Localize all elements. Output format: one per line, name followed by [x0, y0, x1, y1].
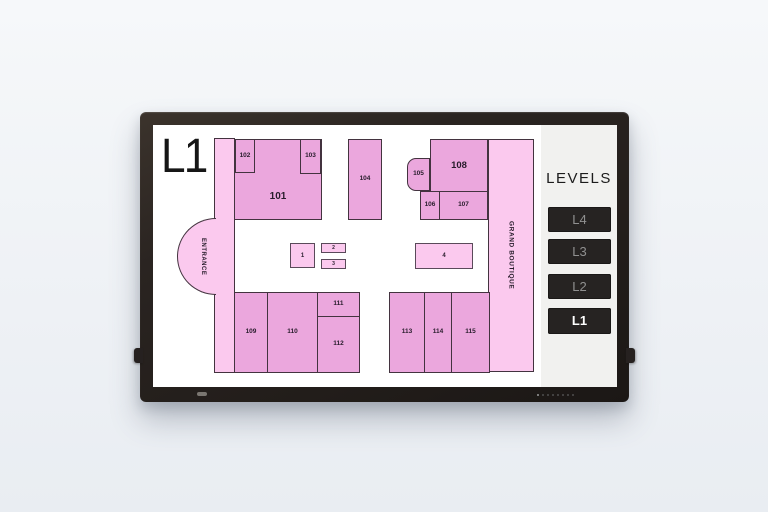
- entrance-area: [177, 218, 216, 295]
- room-label: 111: [333, 301, 343, 308]
- room-label: 2: [332, 246, 335, 251]
- floorplan: L1 ENTRANCE GRAND BOUTIQUE 1011021031041…: [153, 125, 541, 387]
- room-106[interactable]: 106: [420, 191, 440, 220]
- room-label: 101: [270, 192, 287, 202]
- room-label: 108: [451, 161, 467, 171]
- room-label: 105: [413, 171, 424, 178]
- kiosk-4[interactable]: 4: [415, 243, 473, 269]
- room-104[interactable]: 104: [348, 139, 382, 220]
- level-buttons: L4L3L2L1: [548, 207, 611, 334]
- room-114[interactable]: 114: [424, 292, 452, 373]
- mount-tab-left: [134, 348, 143, 363]
- bezel-dot: [572, 394, 574, 396]
- room-label: 109: [246, 329, 257, 336]
- grand-boutique-store[interactable]: [488, 139, 534, 372]
- room-108[interactable]: 108: [430, 139, 488, 192]
- room-112[interactable]: 112: [317, 316, 360, 373]
- room-label: 3: [332, 262, 335, 267]
- indicator-dots: [537, 394, 574, 396]
- display-monitor: L1 ENTRANCE GRAND BOUTIQUE 1011021031041…: [140, 112, 629, 402]
- room-label: 114: [433, 329, 444, 336]
- level-button-l2[interactable]: L2: [548, 274, 611, 299]
- room-label: 106: [425, 202, 436, 209]
- power-led: [537, 394, 539, 396]
- levels-title: LEVELS: [541, 170, 617, 187]
- levels-sidebar: LEVELS L4L3L2L1: [541, 125, 617, 387]
- room-107[interactable]: 107: [439, 191, 488, 220]
- bezel-dot: [552, 394, 554, 396]
- room-105[interactable]: 105: [407, 158, 430, 191]
- room-103[interactable]: 103: [300, 139, 321, 174]
- room-label: 4: [442, 253, 445, 259]
- brand-logo: [197, 392, 207, 396]
- room-102[interactable]: 102: [235, 139, 255, 173]
- bezel-dot: [567, 394, 569, 396]
- room-115[interactable]: 115: [451, 292, 490, 373]
- display-screen: L1 ENTRANCE GRAND BOUTIQUE 1011021031041…: [153, 125, 617, 387]
- page-background: L1 ENTRANCE GRAND BOUTIQUE 1011021031041…: [0, 0, 768, 512]
- room-label: 115: [465, 329, 476, 336]
- level-button-l4[interactable]: L4: [548, 207, 611, 232]
- room-111[interactable]: 111: [317, 292, 360, 317]
- room-109[interactable]: 109: [234, 292, 268, 373]
- level-title: L1: [161, 133, 206, 181]
- room-label: 102: [240, 153, 251, 160]
- bezel-dot: [557, 394, 559, 396]
- entrance-corridor: [214, 138, 235, 373]
- room-label: 104: [360, 176, 371, 183]
- kiosk-2[interactable]: 2: [321, 243, 346, 253]
- bezel-dot: [542, 394, 544, 396]
- level-button-l3[interactable]: L3: [548, 239, 611, 264]
- room-110[interactable]: 110: [267, 292, 318, 373]
- room-label: 107: [458, 202, 469, 209]
- room-label: 113: [402, 329, 413, 336]
- level-button-l1[interactable]: L1: [548, 308, 611, 334]
- room-label: 110: [287, 329, 298, 336]
- kiosk-1[interactable]: 1: [290, 243, 315, 268]
- kiosk-3[interactable]: 3: [321, 259, 346, 269]
- room-label: 103: [305, 153, 316, 160]
- bezel-dot: [547, 394, 549, 396]
- room-label: 112: [333, 341, 344, 348]
- room-113[interactable]: 113: [389, 292, 425, 373]
- mount-tab-right: [626, 348, 635, 363]
- bezel-dot: [562, 394, 564, 396]
- room-label: 1: [301, 253, 304, 259]
